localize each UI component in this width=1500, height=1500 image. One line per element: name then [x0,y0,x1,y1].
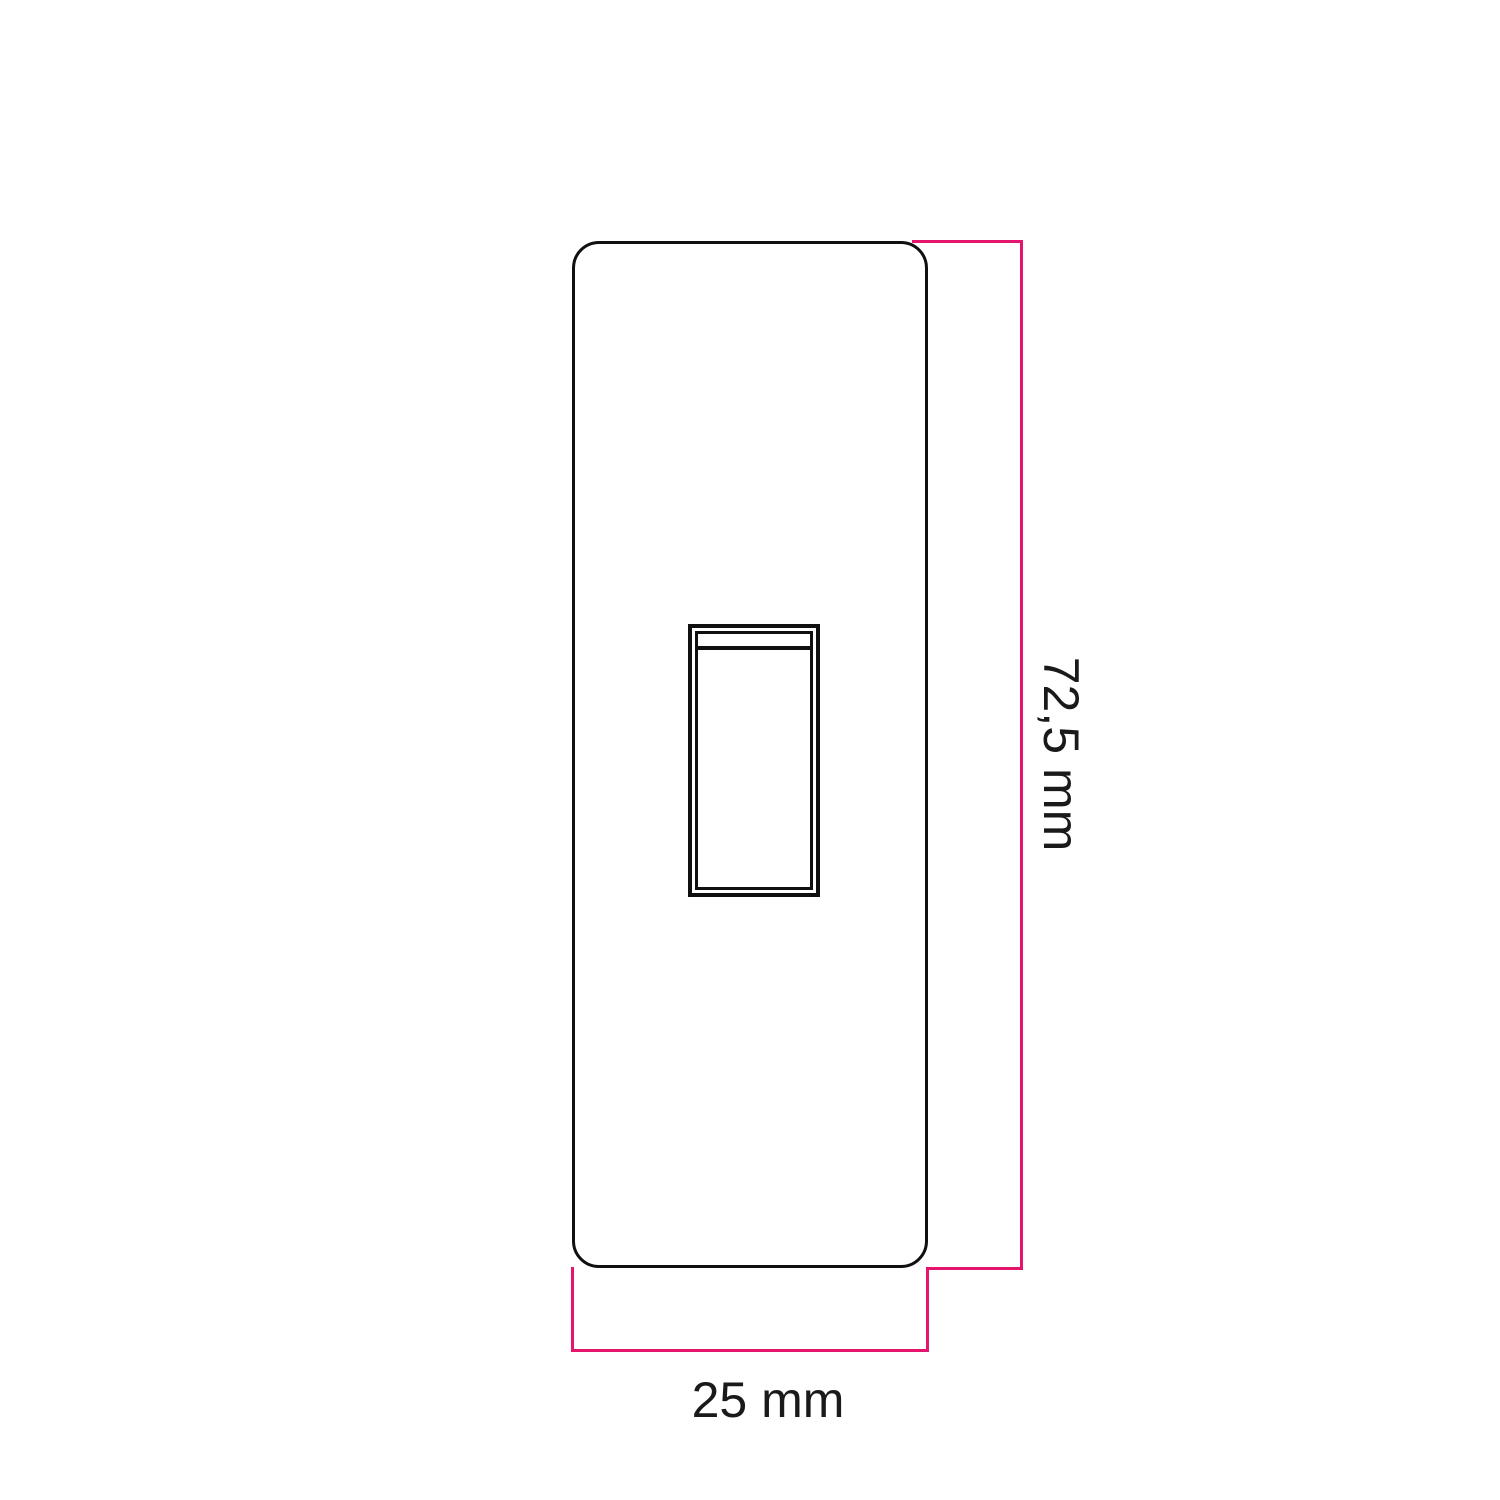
width-dimension-label: 25 mm [692,1375,845,1425]
width-dimension-right-extension-line [926,1267,929,1352]
width-dimension-line [571,1349,929,1352]
rocker-switch-outer-frame [688,624,820,897]
width-dimension-left-extension-line [571,1267,574,1352]
rocker-switch-top-divider [698,646,810,650]
height-dimension-top-extension-line [912,240,1023,243]
rocker-switch-inner-frame [695,631,813,890]
technical-drawing-canvas: 72,5 mm 25 mm [0,0,1500,1500]
height-dimension-bottom-extension-line [928,1267,1023,1270]
height-dimension-label: 72,5 mm [1036,657,1086,852]
height-dimension-line [1020,240,1023,1270]
